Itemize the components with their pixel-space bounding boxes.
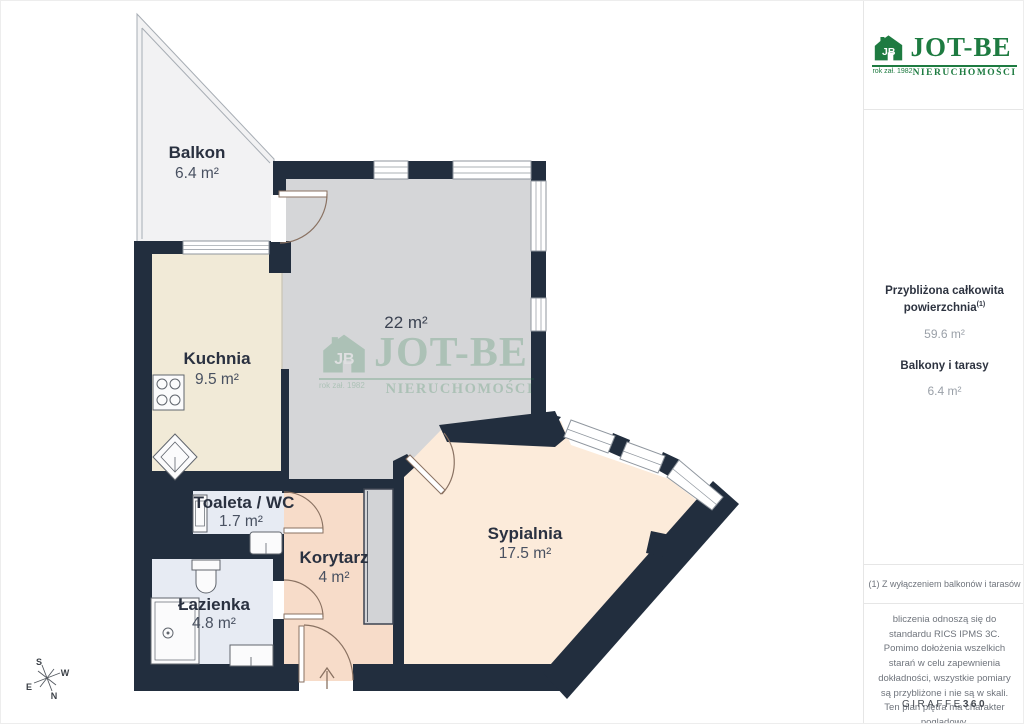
provider-name: GIRAFFE — [902, 699, 963, 710]
compass-east: E — [26, 682, 32, 692]
room-balcony — [137, 14, 274, 242]
total-area-footnote-marker: (1) — [977, 301, 986, 308]
info-sidebar: JB JOT-BE rok zał. 1982 NIERUCHOMOŚCI Pr… — [863, 1, 1024, 724]
floorplan-canvas: Balkon 6.4 m² Kuchnia 9.5 m² 22 m² Toale… — [1, 1, 863, 724]
svg-text:JB: JB — [883, 46, 897, 57]
watermark-subtitle: NIERUCHOMOŚCI — [386, 381, 534, 398]
label-kuchnia-name: Kuchnia — [183, 349, 251, 368]
label-toaleta-area: 1.7 m² — [219, 513, 263, 530]
compass-west: W — [61, 668, 70, 678]
kitchen-window — [183, 241, 269, 254]
total-area-label: Przybliżona całkowita powierzchnia(1) — [876, 283, 1013, 318]
label-sypialnia-name: Sypialnia — [488, 524, 563, 543]
balconies-label: Balkony i tarasy — [876, 358, 1013, 375]
total-area-value: 59.6 m² — [876, 327, 1013, 341]
compass-north: N — [51, 691, 58, 701]
svg-text:JB: JB — [334, 351, 354, 368]
watermark-year: rok zał. 1982 — [319, 381, 365, 390]
compass-south: S — [36, 657, 42, 667]
living-window-right-1 — [531, 181, 546, 251]
house-icon: JB — [872, 33, 905, 62]
balconies-value: 6.4 m² — [876, 384, 1013, 398]
label-lazienka-name: Łazienka — [178, 595, 250, 614]
area-summary: Przybliżona całkowita powierzchnia(1) 59… — [864, 283, 1024, 398]
living-window-right-2 — [531, 298, 546, 331]
label-korytarz-area: 4 m² — [319, 569, 350, 586]
agency-logo-year: rok zał. 1982 — [872, 68, 912, 75]
agency-logo-subtitle: NIERUCHOMOŚCI — [913, 68, 1017, 78]
label-lazienka-area: 4.8 m² — [192, 615, 236, 632]
agency-logo-section: JB JOT-BE rok zał. 1982 NIERUCHOMOŚCI — [864, 1, 1024, 110]
label-kuchnia-area: 9.5 m² — [195, 371, 239, 388]
entry-threshold — [299, 664, 353, 681]
living-window-top-1 — [374, 161, 408, 179]
living-window-top-2 — [453, 161, 531, 179]
label-korytarz-name: Korytarz — [300, 548, 369, 567]
stove-icon — [153, 375, 184, 410]
label-balkon-name: Balkon — [169, 143, 226, 162]
compass-rose: S W E N — [26, 657, 70, 701]
provider-name-bold: 360 — [963, 699, 987, 710]
footnote: (1) Z wyłączeniem balkonów i tarasów — [864, 564, 1024, 604]
bathroom-sink-icon — [230, 645, 273, 666]
provider-logo: GIRAFFE360 — [864, 699, 1024, 710]
floorplan-page: Balkon 6.4 m² Kuchnia 9.5 m² 22 m² Toale… — [0, 0, 1024, 724]
house-icon: JB — [319, 331, 369, 375]
watermark-logo: JB JOT-BE rok zał. 1982 NIERUCHOMOŚCI — [319, 331, 534, 398]
label-sypialnia-area: 17.5 m² — [499, 545, 552, 562]
watermark-title: JOT-BE — [374, 332, 528, 374]
wc-toilet-icon — [250, 532, 282, 554]
label-balkon-area: 6.4 m² — [175, 165, 219, 182]
label-toaleta-name: Toaleta / WC — [194, 493, 295, 512]
agency-logo: JB JOT-BE rok zał. 1982 NIERUCHOMOŚCI — [872, 33, 1016, 78]
agency-logo-title: JOT-BE — [910, 34, 1011, 61]
